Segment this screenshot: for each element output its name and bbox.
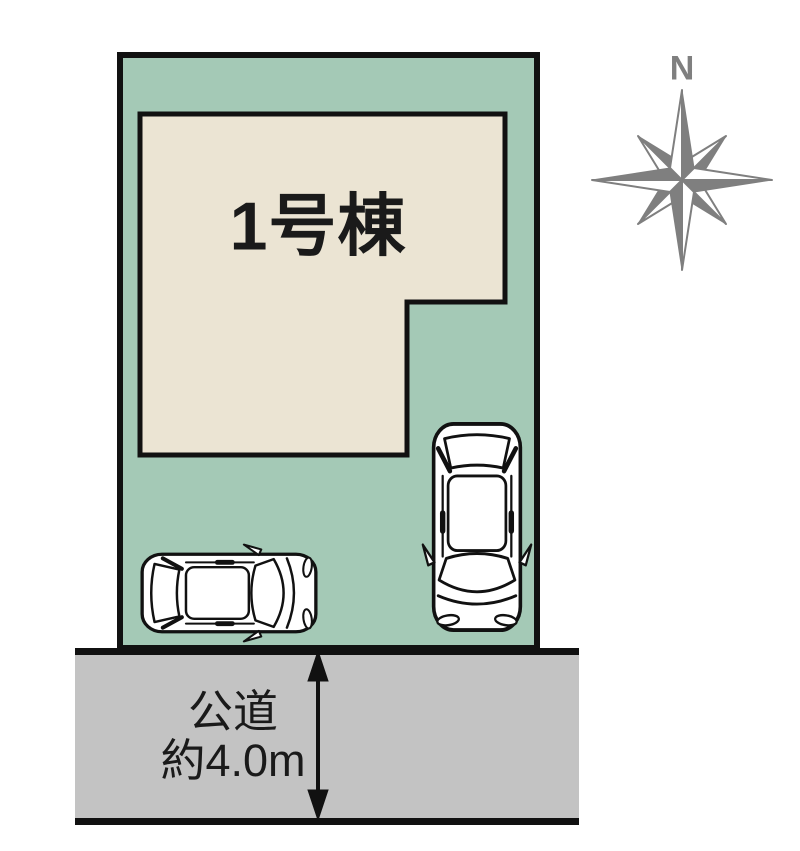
road-width-arrow xyxy=(308,651,328,820)
road-label: 公道 約4.0m xyxy=(160,687,305,785)
car-rear-window xyxy=(444,435,509,468)
car-icon-vertical xyxy=(423,424,531,630)
car-rear-window xyxy=(151,564,179,622)
building-footprint xyxy=(140,114,505,455)
car-roof xyxy=(186,567,249,619)
road-width-text: 約4.0m xyxy=(160,736,305,785)
compass-north-label: N xyxy=(670,50,695,89)
car-roof xyxy=(448,476,506,551)
compass-rose-icon xyxy=(592,90,772,270)
road-name-text: 公道 xyxy=(160,687,305,736)
site-plan-canvas: 1号棟 公道 約4.0m N xyxy=(0,0,800,851)
siteplan-overlay xyxy=(0,0,800,851)
car-windshield xyxy=(439,554,515,592)
building-label: 1号棟 xyxy=(230,171,407,270)
car-icon-horizontal xyxy=(142,545,316,642)
car-windshield xyxy=(251,559,283,627)
